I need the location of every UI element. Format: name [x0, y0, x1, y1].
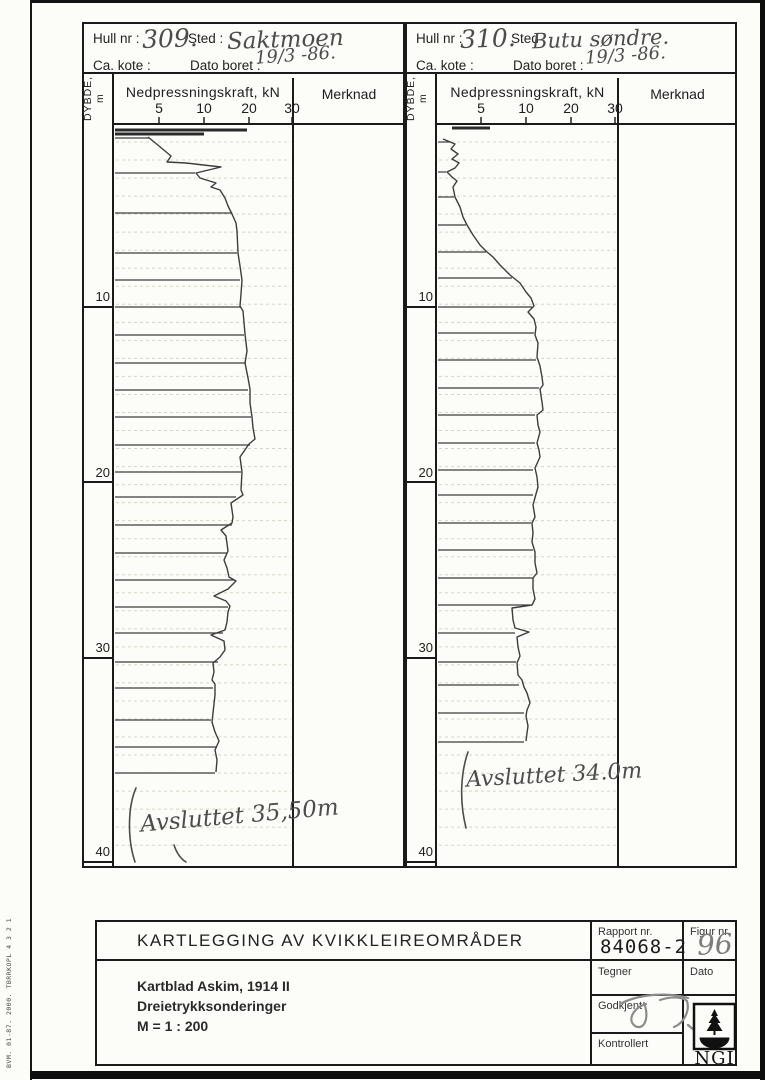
log-310-border	[405, 22, 737, 868]
log-309-border	[82, 22, 405, 868]
ngi-bowl-icon	[700, 1038, 730, 1049]
log-310-chart-top-border	[436, 123, 737, 125]
scan-edge-right	[760, 0, 765, 1080]
rapport-nr-value: 84068-2	[600, 936, 687, 958]
map-sheet-line: Kartblad Askim, 1914 II	[137, 978, 290, 994]
dato-label: Dato	[690, 966, 713, 978]
merknad-column-label: Merknad	[296, 86, 402, 102]
scale-line: M = 1 : 200	[137, 1018, 208, 1034]
margin-print-code: BVM. 01-87. 2000. TBRRKOPL 4 3 2 1	[5, 918, 13, 1068]
report-title: KARTLEGGING AV KVIKKLEIREOMRÅDER	[137, 931, 524, 951]
hull-nr-handwritten-value: 309.	[142, 23, 199, 54]
log-309-chart-top-border	[113, 123, 405, 125]
dato-boret-label: Dato boret :	[513, 58, 584, 73]
depth-axis-label: DYBDE, m	[405, 74, 435, 123]
log-310-depth-column-divider	[435, 72, 437, 868]
godkjent-initials-scribble	[612, 988, 702, 1038]
ngi-tree-icon	[707, 1009, 723, 1031]
sounding-log-309: Hull nr : Sted : Ca. kote : Dato boret :…	[82, 22, 405, 868]
log-310-merknad-divider	[617, 78, 619, 868]
scan-edge-left	[30, 0, 32, 1080]
ca-kote-label: Ca. kote :	[93, 58, 151, 73]
kontrollert-label: Kontrollert	[598, 1038, 648, 1050]
figur-nr-handwritten-value: 96	[696, 927, 733, 962]
ngi-logo: NGI	[692, 1002, 740, 1068]
merknad-column-label: Merknad	[621, 86, 734, 102]
title-row-divider	[95, 959, 737, 961]
force-axis-label: Nedpressningskraft, kN	[437, 84, 618, 100]
scan-edge-bottom	[30, 1071, 765, 1079]
hull-nr-handwritten-value: 310.	[460, 23, 517, 54]
report-column-divider	[590, 920, 592, 1066]
scanned-sounding-report-page: Hull nr : Sted : Ca. kote : Dato boret :…	[0, 0, 765, 1080]
ca-kote-label: Ca. kote :	[416, 58, 474, 73]
log-309-merknad-divider	[292, 78, 294, 868]
depth-axis-label: DYBDE, m	[82, 74, 112, 123]
scan-edge-top	[30, 0, 765, 3]
force-axis-label: Nedpressningskraft, kN	[114, 84, 292, 100]
log-309-depth-column-divider	[112, 72, 114, 868]
tegner-label: Tegner	[598, 966, 632, 978]
method-line: Dreietrykksonderinger	[137, 998, 286, 1014]
ngi-logo-text: NGI	[694, 1048, 734, 1068]
hull-nr-label: Hull nr :	[416, 31, 463, 46]
ngi-tree-trunk	[714, 1031, 716, 1035]
sounding-log-310: Hull nr : Sted Ca. kote : Dato boret : D…	[405, 22, 737, 868]
hull-nr-label: Hull nr :	[93, 31, 140, 46]
dato-boret-label: Dato boret :	[190, 58, 261, 73]
